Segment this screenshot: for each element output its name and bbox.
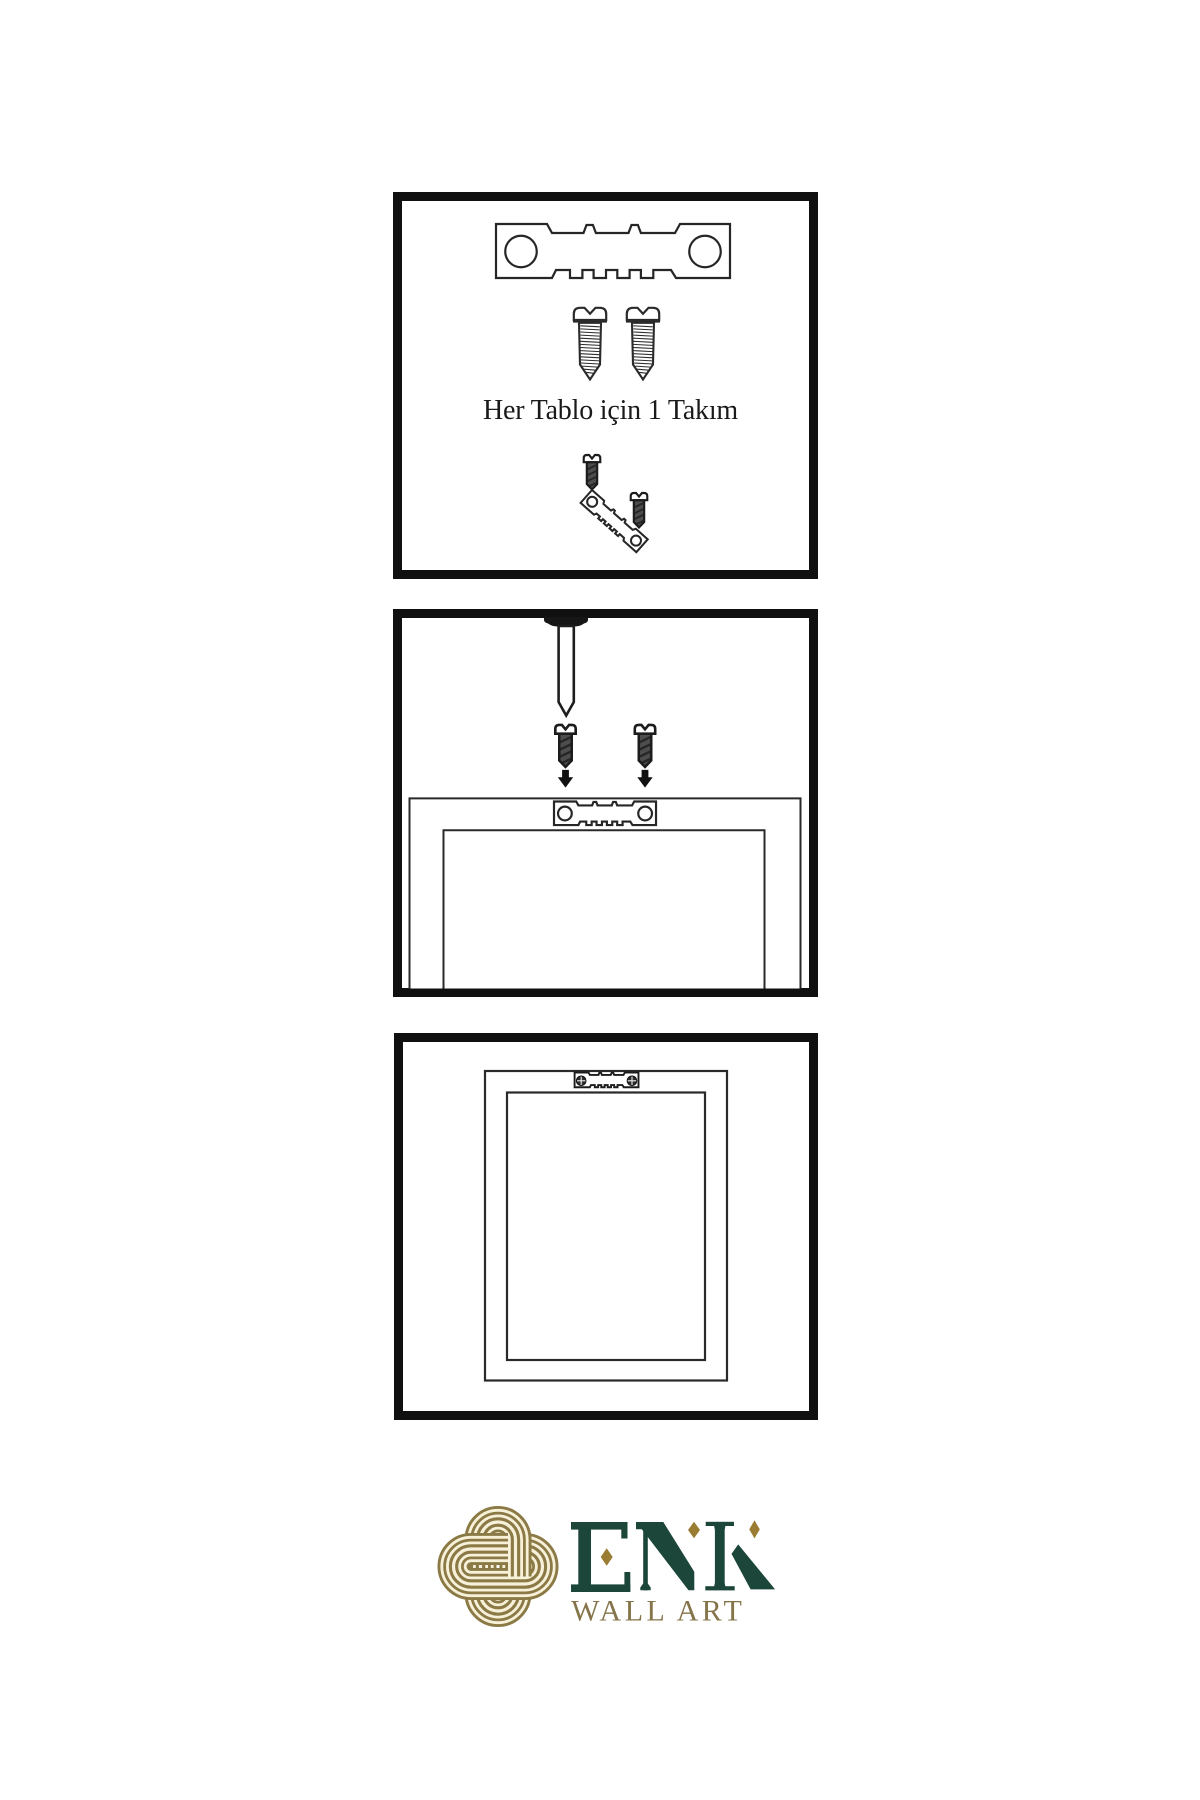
svg-text:WALL ART: WALL ART: [571, 1595, 745, 1628]
svg-text:Her Tablo için 1 Takım: Her Tablo için 1 Takım: [483, 395, 738, 426]
